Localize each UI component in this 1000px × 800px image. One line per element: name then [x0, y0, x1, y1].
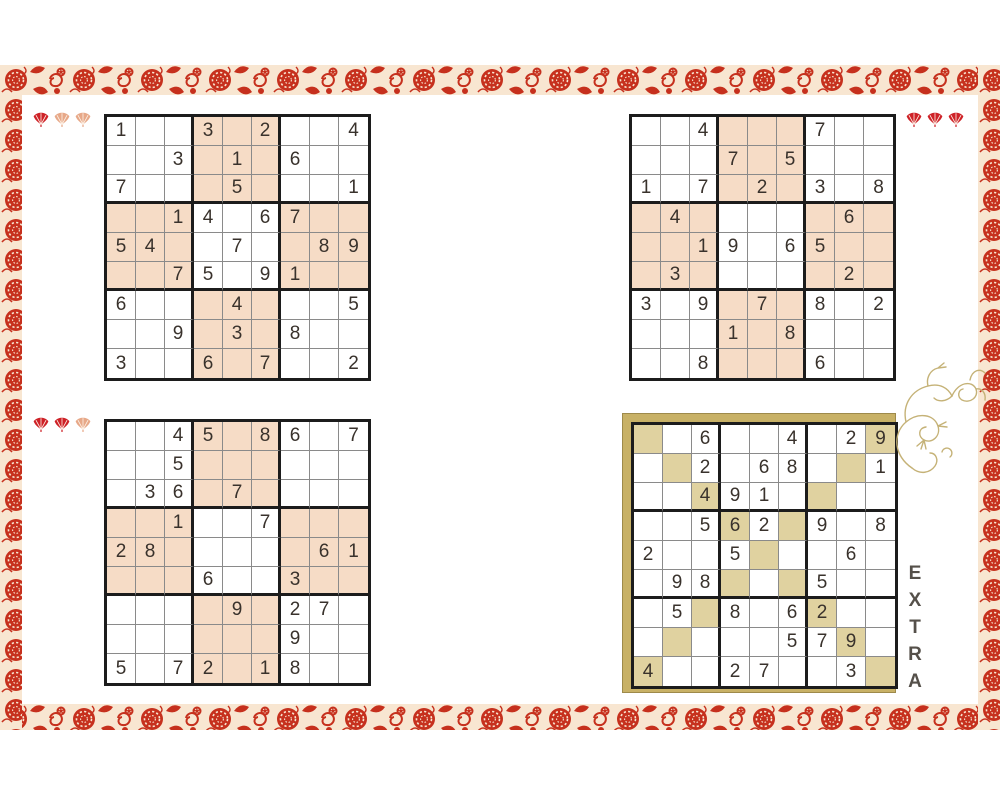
sudoku-cell[interactable] [223, 509, 252, 538]
sudoku-cell[interactable] [661, 117, 690, 146]
sudoku-cell[interactable] [835, 320, 864, 349]
sudoku-cell[interactable]: 3 [632, 291, 661, 320]
sudoku-cell[interactable] [661, 349, 690, 378]
sudoku-cell[interactable] [310, 146, 339, 175]
sudoku-cell[interactable] [835, 175, 864, 204]
sudoku-cell[interactable]: 2 [837, 425, 866, 454]
sudoku-cell[interactable]: 8 [864, 175, 893, 204]
sudoku-cell[interactable] [194, 480, 223, 509]
sudoku-cell[interactable] [634, 628, 663, 657]
sudoku-cell[interactable] [165, 538, 194, 567]
sudoku-cell[interactable] [719, 262, 748, 291]
sudoku-cell[interactable]: 9 [719, 233, 748, 262]
sudoku-cell[interactable]: 5 [806, 233, 835, 262]
sudoku-cell[interactable] [223, 349, 252, 378]
sudoku-cell[interactable] [136, 509, 165, 538]
sudoku-cell[interactable]: 5 [808, 570, 837, 599]
sudoku-cell[interactable] [837, 483, 866, 512]
sudoku-cell[interactable] [779, 483, 808, 512]
sudoku-cell[interactable]: 1 [339, 538, 368, 567]
sudoku-cell[interactable]: 6 [165, 480, 194, 509]
sudoku-cell[interactable] [194, 451, 223, 480]
sudoku-cell[interactable] [750, 425, 779, 454]
sudoku-cell[interactable]: 5 [692, 512, 721, 541]
sudoku-cell[interactable] [721, 454, 750, 483]
sudoku-cell[interactable]: 4 [194, 204, 223, 233]
sudoku-cell[interactable]: 6 [281, 146, 310, 175]
sudoku-cell[interactable] [339, 567, 368, 596]
sudoku-cell[interactable] [632, 204, 661, 233]
sudoku-cell[interactable] [165, 291, 194, 320]
sudoku-cell[interactable] [165, 625, 194, 654]
sudoku-cell[interactable] [136, 654, 165, 683]
sudoku-cell[interactable]: 8 [692, 570, 721, 599]
sudoku-cell[interactable]: 7 [107, 175, 136, 204]
sudoku-cell[interactable] [806, 146, 835, 175]
sudoku-cell[interactable]: 6 [779, 599, 808, 628]
sudoku-cell[interactable] [690, 262, 719, 291]
sudoku-cell[interactable]: 6 [806, 349, 835, 378]
sudoku-cell[interactable]: 1 [750, 483, 779, 512]
sudoku-cell[interactable] [632, 320, 661, 349]
sudoku-cell[interactable] [748, 117, 777, 146]
sudoku-cell[interactable] [661, 233, 690, 262]
sudoku-cell[interactable] [779, 657, 808, 686]
sudoku-cell[interactable] [661, 291, 690, 320]
sudoku-cell[interactable] [808, 425, 837, 454]
sudoku-cell[interactable]: 3 [661, 262, 690, 291]
sudoku-cell[interactable]: 4 [661, 204, 690, 233]
sudoku-cell[interactable] [310, 291, 339, 320]
sudoku-cell[interactable]: 9 [165, 320, 194, 349]
sudoku-cell[interactable] [107, 146, 136, 175]
sudoku-cell[interactable]: 9 [223, 596, 252, 625]
sudoku-cell[interactable]: 8 [866, 512, 895, 541]
sudoku-cell[interactable]: 5 [194, 262, 223, 291]
sudoku-cell[interactable] [835, 117, 864, 146]
sudoku-cell[interactable] [223, 262, 252, 291]
sudoku-cell[interactable]: 8 [136, 538, 165, 567]
sudoku-cell[interactable]: 5 [107, 654, 136, 683]
sudoku-cell[interactable] [777, 204, 806, 233]
sudoku-cell[interactable]: 5 [777, 146, 806, 175]
sudoku-cell[interactable]: 6 [252, 204, 281, 233]
sudoku-cell[interactable]: 8 [779, 454, 808, 483]
sudoku-cell[interactable] [750, 599, 779, 628]
sudoku-cell[interactable] [252, 538, 281, 567]
sudoku-cell[interactable] [837, 570, 866, 599]
sudoku-cell[interactable]: 2 [107, 538, 136, 567]
sudoku-cell[interactable] [281, 480, 310, 509]
sudoku-cell[interactable]: 3 [136, 480, 165, 509]
sudoku-cell[interactable] [165, 349, 194, 378]
sudoku-cell[interactable] [194, 175, 223, 204]
sudoku-cell[interactable]: 8 [252, 422, 281, 451]
sudoku-cell[interactable]: 6 [692, 425, 721, 454]
sudoku-cell[interactable]: 6 [194, 349, 223, 378]
sudoku-cell[interactable] [719, 117, 748, 146]
sudoku-cell[interactable] [690, 146, 719, 175]
sudoku-cell[interactable] [107, 596, 136, 625]
sudoku-cell[interactable] [835, 233, 864, 262]
sudoku-cell[interactable] [866, 541, 895, 570]
sudoku-cell[interactable] [777, 349, 806, 378]
sudoku-cell[interactable]: 4 [690, 117, 719, 146]
sudoku-cell[interactable]: 5 [663, 599, 692, 628]
sudoku-cell[interactable] [632, 117, 661, 146]
sudoku-cell[interactable] [223, 422, 252, 451]
sudoku-cell[interactable] [252, 291, 281, 320]
sudoku-cell[interactable] [777, 262, 806, 291]
sudoku-cell[interactable] [663, 483, 692, 512]
sudoku-cell[interactable] [194, 538, 223, 567]
sudoku-cell[interactable]: 4 [692, 483, 721, 512]
sudoku-cell[interactable] [779, 570, 808, 599]
sudoku-cell[interactable]: 9 [690, 291, 719, 320]
sudoku-cell[interactable] [136, 117, 165, 146]
sudoku-cell[interactable] [339, 146, 368, 175]
sudoku-cell[interactable]: 1 [223, 146, 252, 175]
sudoku-cell[interactable]: 6 [310, 538, 339, 567]
sudoku-cell[interactable] [223, 625, 252, 654]
sudoku-cell[interactable]: 5 [721, 541, 750, 570]
sudoku-cell[interactable] [777, 291, 806, 320]
sudoku-cell[interactable]: 3 [223, 320, 252, 349]
sudoku-cell[interactable]: 6 [750, 454, 779, 483]
sudoku-cell[interactable] [808, 454, 837, 483]
sudoku-cell[interactable] [281, 291, 310, 320]
sudoku-cell[interactable] [310, 320, 339, 349]
sudoku-cell[interactable] [808, 657, 837, 686]
sudoku-cell[interactable] [136, 451, 165, 480]
sudoku-cell[interactable] [136, 262, 165, 291]
sudoku-cell[interactable] [866, 570, 895, 599]
sudoku-cell[interactable] [748, 233, 777, 262]
sudoku-cell[interactable]: 1 [719, 320, 748, 349]
sudoku-cell[interactable] [339, 625, 368, 654]
sudoku-cell[interactable] [721, 425, 750, 454]
sudoku-cell[interactable] [634, 599, 663, 628]
sudoku-cell[interactable] [107, 451, 136, 480]
sudoku-cell[interactable]: 8 [806, 291, 835, 320]
sudoku-cell[interactable] [748, 349, 777, 378]
sudoku-cell[interactable]: 4 [165, 422, 194, 451]
sudoku-cell[interactable] [866, 628, 895, 657]
sudoku-cell[interactable]: 2 [194, 654, 223, 683]
sudoku-cell[interactable] [310, 349, 339, 378]
sudoku-cell[interactable]: 7 [339, 422, 368, 451]
sudoku-cell[interactable] [223, 654, 252, 683]
sudoku-cell[interactable]: 7 [748, 291, 777, 320]
sudoku-cell[interactable] [690, 320, 719, 349]
sudoku-cell[interactable] [136, 204, 165, 233]
sudoku-cell[interactable] [777, 175, 806, 204]
sudoku-cell[interactable] [252, 567, 281, 596]
sudoku-cell[interactable]: 3 [194, 117, 223, 146]
sudoku-cell[interactable] [223, 204, 252, 233]
sudoku-cell[interactable]: 2 [835, 262, 864, 291]
sudoku-cell[interactable] [194, 291, 223, 320]
sudoku-cell[interactable] [252, 233, 281, 262]
sudoku-cell[interactable]: 7 [808, 628, 837, 657]
sudoku-cell[interactable]: 9 [808, 512, 837, 541]
sudoku-cell[interactable] [310, 422, 339, 451]
sudoku-cell[interactable]: 7 [719, 146, 748, 175]
sudoku-cell[interactable]: 6 [721, 512, 750, 541]
sudoku-cell[interactable] [339, 480, 368, 509]
sudoku-cell[interactable]: 8 [690, 349, 719, 378]
sudoku-cell[interactable]: 9 [663, 570, 692, 599]
sudoku-cell[interactable] [837, 512, 866, 541]
sudoku-cell[interactable] [663, 425, 692, 454]
sudoku-cell[interactable] [748, 320, 777, 349]
sudoku-cell[interactable]: 6 [837, 541, 866, 570]
sudoku-cell[interactable] [663, 541, 692, 570]
sudoku-cell[interactable]: 3 [837, 657, 866, 686]
sudoku-cell[interactable] [310, 509, 339, 538]
sudoku-cell[interactable]: 7 [165, 262, 194, 291]
sudoku-cell[interactable] [310, 262, 339, 291]
sudoku-cell[interactable] [310, 654, 339, 683]
sudoku-cell[interactable] [107, 567, 136, 596]
sudoku-cell[interactable]: 2 [634, 541, 663, 570]
sudoku-cell[interactable] [136, 422, 165, 451]
sudoku-cell[interactable] [252, 596, 281, 625]
sudoku-cell[interactable] [779, 541, 808, 570]
sudoku-cell[interactable]: 9 [281, 625, 310, 654]
sudoku-cell[interactable] [194, 596, 223, 625]
sudoku-cell[interactable]: 8 [281, 654, 310, 683]
sudoku-cell[interactable] [165, 567, 194, 596]
sudoku-cell[interactable]: 1 [690, 233, 719, 262]
sudoku-cell[interactable] [663, 454, 692, 483]
sudoku-cell[interactable] [721, 628, 750, 657]
sudoku-cell[interactable]: 4 [339, 117, 368, 146]
sudoku-cell[interactable]: 1 [165, 204, 194, 233]
sudoku-cell[interactable] [339, 596, 368, 625]
sudoku-cell[interactable] [281, 349, 310, 378]
sudoku-cell[interactable] [632, 233, 661, 262]
sudoku-cell[interactable] [690, 204, 719, 233]
sudoku-cell[interactable] [339, 262, 368, 291]
sudoku-cell[interactable] [252, 625, 281, 654]
sudoku-cell[interactable] [634, 512, 663, 541]
sudoku-cell[interactable] [777, 117, 806, 146]
sudoku-cell[interactable] [835, 291, 864, 320]
sudoku-cell[interactable]: 2 [339, 349, 368, 378]
sudoku-cell[interactable] [866, 599, 895, 628]
sudoku-cell[interactable]: 7 [223, 480, 252, 509]
sudoku-cell[interactable] [310, 625, 339, 654]
sudoku-cell[interactable]: 2 [748, 175, 777, 204]
sudoku-cell[interactable] [692, 541, 721, 570]
sudoku-cell[interactable] [661, 175, 690, 204]
sudoku-cell[interactable]: 5 [779, 628, 808, 657]
sudoku-cell[interactable] [281, 175, 310, 204]
sudoku-cell[interactable]: 7 [281, 204, 310, 233]
sudoku-cell[interactable] [632, 146, 661, 175]
sudoku-cell[interactable] [223, 451, 252, 480]
sudoku-cell[interactable] [692, 628, 721, 657]
sudoku-cell[interactable]: 3 [165, 146, 194, 175]
sudoku-cell[interactable]: 6 [281, 422, 310, 451]
sudoku-cell[interactable] [663, 512, 692, 541]
sudoku-cell[interactable] [194, 146, 223, 175]
sudoku-cell[interactable] [310, 117, 339, 146]
sudoku-cell[interactable] [339, 204, 368, 233]
sudoku-cell[interactable]: 2 [864, 291, 893, 320]
sudoku-cell[interactable] [136, 291, 165, 320]
sudoku-cell[interactable] [632, 262, 661, 291]
sudoku-cell[interactable] [223, 538, 252, 567]
sudoku-cell[interactable]: 3 [281, 567, 310, 596]
sudoku-cell[interactable]: 1 [339, 175, 368, 204]
sudoku-cell[interactable]: 7 [223, 233, 252, 262]
sudoku-cell[interactable] [194, 509, 223, 538]
sudoku-cell[interactable] [252, 320, 281, 349]
sudoku-cell[interactable]: 4 [634, 657, 663, 686]
sudoku-cell[interactable] [632, 349, 661, 378]
sudoku-cell[interactable] [835, 146, 864, 175]
sudoku-cell[interactable] [806, 320, 835, 349]
sudoku-cell[interactable]: 6 [194, 567, 223, 596]
sudoku-cell[interactable] [165, 596, 194, 625]
sudoku-cell[interactable] [107, 422, 136, 451]
sudoku-cell[interactable] [165, 175, 194, 204]
sudoku-cell[interactable] [136, 175, 165, 204]
sudoku-cell[interactable]: 3 [107, 349, 136, 378]
sudoku-cell[interactable] [339, 509, 368, 538]
sudoku-cell[interactable]: 7 [252, 509, 281, 538]
sudoku-cell[interactable]: 4 [779, 425, 808, 454]
sudoku-cell[interactable]: 1 [632, 175, 661, 204]
sudoku-cell[interactable] [281, 509, 310, 538]
sudoku-cell[interactable] [779, 512, 808, 541]
sudoku-cell[interactable] [107, 480, 136, 509]
sudoku-cell[interactable]: 1 [107, 117, 136, 146]
sudoku-cell[interactable]: 6 [835, 204, 864, 233]
sudoku-cell[interactable]: 6 [777, 233, 806, 262]
sudoku-cell[interactable] [866, 483, 895, 512]
sudoku-cell[interactable] [721, 570, 750, 599]
sudoku-cell[interactable] [864, 204, 893, 233]
sudoku-cell[interactable] [107, 204, 136, 233]
sudoku-cell[interactable]: 2 [252, 117, 281, 146]
sudoku-cell[interactable] [339, 451, 368, 480]
sudoku-cell[interactable] [866, 657, 895, 686]
sudoku-cell[interactable]: 2 [750, 512, 779, 541]
sudoku-cell[interactable] [165, 117, 194, 146]
sudoku-cell[interactable] [136, 349, 165, 378]
sudoku-cell[interactable]: 2 [808, 599, 837, 628]
sudoku-cell[interactable] [719, 291, 748, 320]
sudoku-cell[interactable]: 7 [750, 657, 779, 686]
sudoku-cell[interactable] [136, 596, 165, 625]
sudoku-cell[interactable] [310, 175, 339, 204]
sudoku-cell[interactable] [107, 625, 136, 654]
sudoku-cell[interactable] [806, 204, 835, 233]
sudoku-cell[interactable] [281, 117, 310, 146]
sudoku-cell[interactable]: 2 [281, 596, 310, 625]
sudoku-cell[interactable] [252, 175, 281, 204]
sudoku-cell[interactable] [835, 349, 864, 378]
sudoku-cell[interactable] [310, 451, 339, 480]
sudoku-cell[interactable] [281, 538, 310, 567]
sudoku-cell[interactable]: 7 [806, 117, 835, 146]
sudoku-cell[interactable] [281, 451, 310, 480]
sudoku-cell[interactable]: 9 [252, 262, 281, 291]
sudoku-cell[interactable] [634, 570, 663, 599]
sudoku-cell[interactable] [750, 541, 779, 570]
sudoku-cell[interactable]: 9 [837, 628, 866, 657]
sudoku-cell[interactable] [136, 146, 165, 175]
sudoku-cell[interactable] [663, 657, 692, 686]
sudoku-cell[interactable]: 1 [281, 262, 310, 291]
sudoku-cell[interactable]: 7 [165, 654, 194, 683]
sudoku-cell[interactable] [252, 146, 281, 175]
sudoku-cell[interactable]: 3 [806, 175, 835, 204]
sudoku-cell[interactable] [750, 628, 779, 657]
sudoku-cell[interactable] [136, 625, 165, 654]
sudoku-cell[interactable] [223, 117, 252, 146]
sudoku-cell[interactable] [661, 146, 690, 175]
sudoku-cell[interactable]: 8 [281, 320, 310, 349]
sudoku-cell[interactable]: 6 [107, 291, 136, 320]
sudoku-cell[interactable]: 8 [721, 599, 750, 628]
sudoku-cell[interactable]: 5 [107, 233, 136, 262]
sudoku-cell[interactable]: 2 [721, 657, 750, 686]
sudoku-cell[interactable]: 9 [339, 233, 368, 262]
sudoku-cell[interactable] [107, 320, 136, 349]
sudoku-cell[interactable] [806, 262, 835, 291]
sudoku-cell[interactable] [223, 567, 252, 596]
sudoku-cell[interactable] [837, 454, 866, 483]
sudoku-cell[interactable]: 4 [136, 233, 165, 262]
sudoku-cell[interactable]: 7 [310, 596, 339, 625]
sudoku-cell[interactable] [692, 657, 721, 686]
sudoku-cell[interactable] [165, 233, 194, 262]
sudoku-cell[interactable]: 2 [692, 454, 721, 483]
sudoku-cell[interactable] [194, 320, 223, 349]
sudoku-cell[interactable] [310, 204, 339, 233]
sudoku-cell[interactable]: 1 [165, 509, 194, 538]
sudoku-cell[interactable]: 8 [777, 320, 806, 349]
sudoku-cell[interactable] [107, 262, 136, 291]
sudoku-cell[interactable] [339, 654, 368, 683]
sudoku-cell[interactable] [748, 262, 777, 291]
sudoku-cell[interactable]: 5 [223, 175, 252, 204]
sudoku-cell[interactable] [692, 599, 721, 628]
sudoku-cell[interactable] [339, 320, 368, 349]
sudoku-cell[interactable] [194, 625, 223, 654]
sudoku-cell[interactable]: 7 [252, 349, 281, 378]
sudoku-cell[interactable]: 8 [310, 233, 339, 262]
sudoku-cell[interactable] [252, 451, 281, 480]
sudoku-cell[interactable] [252, 480, 281, 509]
sudoku-cell[interactable] [808, 483, 837, 512]
sudoku-cell[interactable]: 9 [721, 483, 750, 512]
sudoku-cell[interactable]: 5 [339, 291, 368, 320]
sudoku-cell[interactable] [748, 204, 777, 233]
sudoku-cell[interactable] [864, 117, 893, 146]
sudoku-cell[interactable] [748, 146, 777, 175]
sudoku-cell[interactable] [864, 233, 893, 262]
sudoku-cell[interactable] [310, 567, 339, 596]
sudoku-cell[interactable] [194, 233, 223, 262]
sudoku-cell[interactable] [864, 320, 893, 349]
sudoku-cell[interactable] [281, 233, 310, 262]
sudoku-cell[interactable] [719, 175, 748, 204]
